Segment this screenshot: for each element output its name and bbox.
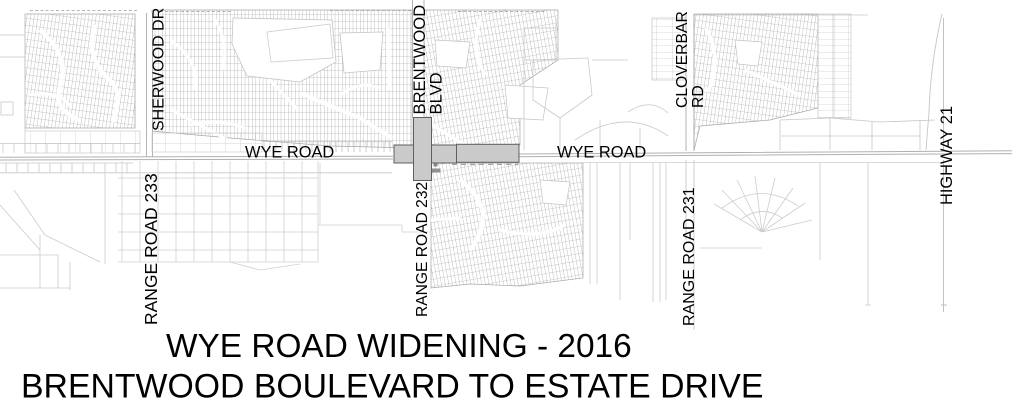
svg-text:BRENTWOOD BOULEVARD TO ESTATE: BRENTWOOD BOULEVARD TO ESTATE DRIVE <box>21 368 763 406</box>
svg-text:SHERWOOD DR: SHERWOOD DR <box>151 8 168 131</box>
svg-text:CLOVERBAR: CLOVERBAR <box>674 11 691 108</box>
svg-text:WYE ROAD: WYE ROAD <box>245 144 334 162</box>
svg-text:HIGHWAY 21: HIGHWAY 21 <box>938 106 956 205</box>
svg-text:RANGE ROAD 233: RANGE ROAD 233 <box>141 173 161 325</box>
svg-text:RD: RD <box>690 85 707 108</box>
svg-text:WYE ROAD WIDENING - 2016: WYE ROAD WIDENING - 2016 <box>166 328 632 365</box>
svg-text:RANGE ROAD 232: RANGE ROAD 232 <box>414 182 431 317</box>
svg-text:RANGE ROAD 231: RANGE ROAD 231 <box>681 187 698 326</box>
svg-text:BLVD: BLVD <box>427 72 446 114</box>
svg-text:WYE ROAD: WYE ROAD <box>557 144 646 162</box>
